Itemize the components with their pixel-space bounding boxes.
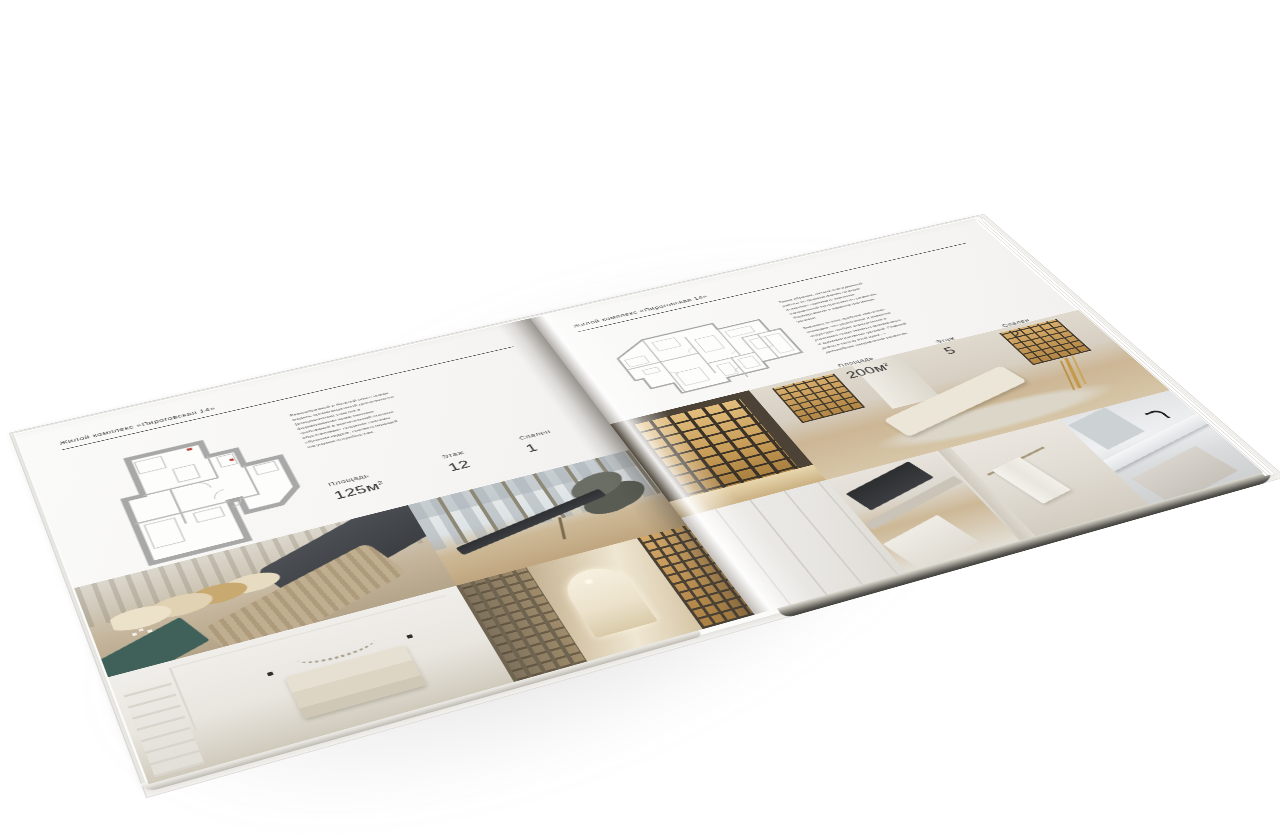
faucet-shape [1144,409,1170,423]
stat-area-sup: 2 [376,479,384,486]
description-paragraph: Разнообразный и богатый опыт: новая моде… [289,390,427,472]
towel-shape [992,457,1071,504]
arched-mirror-shape [556,562,658,638]
stat-bedrooms-number: 1 [523,441,540,454]
stat-floor-number: 5 [941,345,959,357]
table-leg-shape [558,517,566,539]
stat-floor-number: 12 [445,458,472,474]
gold-sculpture-shape [1064,358,1082,389]
stat-bedrooms-number: 2 [1007,328,1026,339]
mockup-canvas: Жилой комплекс «Пироговская 14» [0,0,1280,835]
